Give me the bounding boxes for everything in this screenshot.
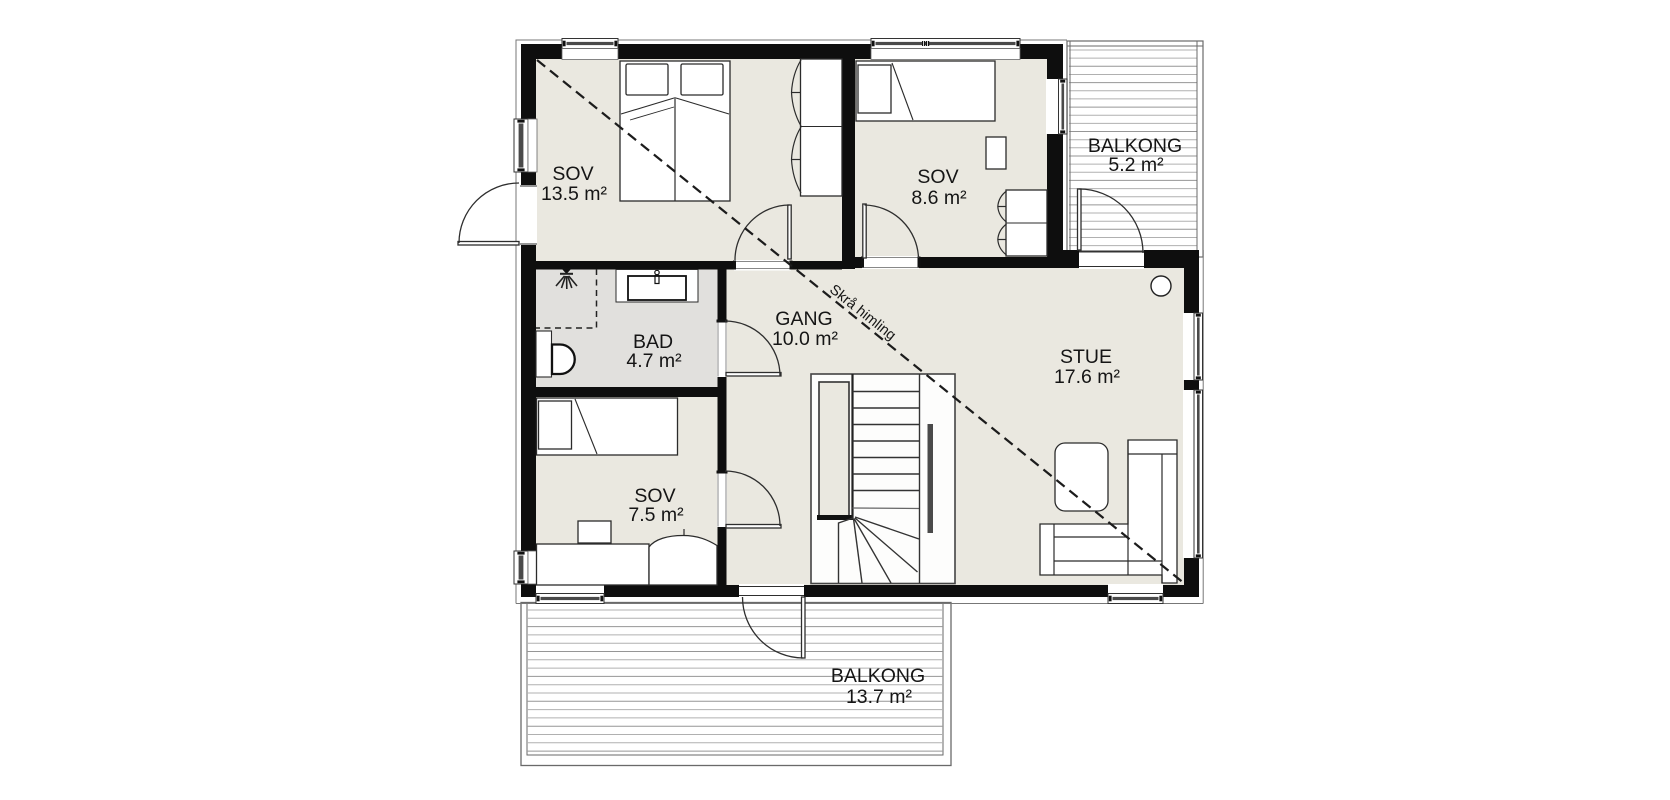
svg-text:4.7 m²: 4.7 m² — [626, 350, 682, 372]
svg-text:17.6 m²: 17.6 m² — [1054, 366, 1121, 388]
svg-text:SOV: SOV — [917, 166, 958, 188]
svg-text:5.2 m²: 5.2 m² — [1108, 154, 1164, 176]
svg-text:10.0 m²: 10.0 m² — [772, 328, 839, 350]
svg-text:8.6 m²: 8.6 m² — [911, 187, 967, 209]
svg-text:SOV: SOV — [552, 163, 593, 185]
svg-text:13.5 m²: 13.5 m² — [541, 183, 608, 205]
svg-text:7.5 m²: 7.5 m² — [628, 504, 684, 526]
svg-text:GANG: GANG — [775, 308, 832, 330]
svg-text:BALKONG: BALKONG — [831, 665, 925, 687]
svg-text:13.7 m²: 13.7 m² — [846, 686, 913, 708]
svg-text:STUE: STUE — [1060, 346, 1112, 368]
